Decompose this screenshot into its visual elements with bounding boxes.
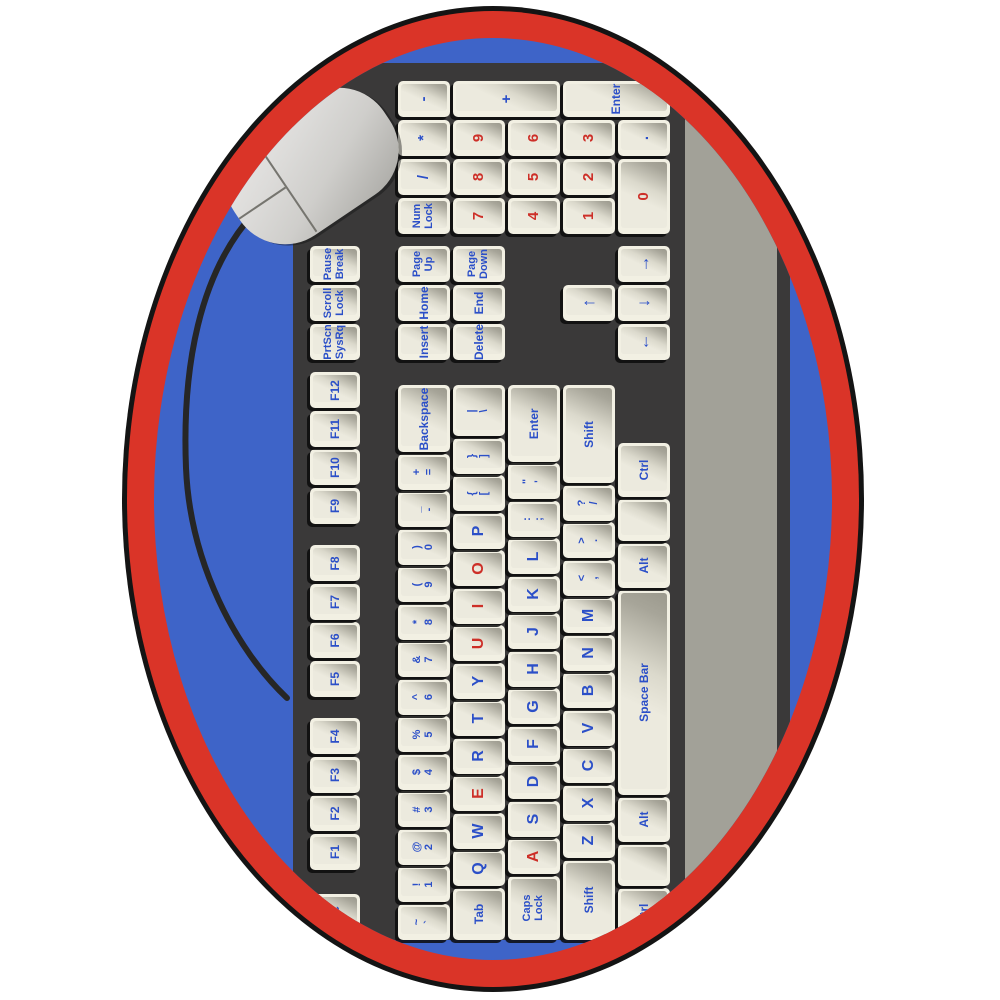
keycap-legend: L bbox=[508, 539, 560, 575]
keycap-legend: # 3 bbox=[398, 792, 450, 828]
key-e: E bbox=[453, 776, 505, 812]
keycap-legend: Shift bbox=[563, 386, 615, 484]
key-ctrl: Ctrl bbox=[618, 443, 670, 497]
key-f9: F9 bbox=[310, 488, 360, 524]
key-d: D bbox=[508, 764, 560, 800]
keycap-legend: B bbox=[563, 673, 615, 709]
key-caps-lock: Caps Lock bbox=[508, 876, 560, 940]
key-numpad-7: 7 bbox=[453, 198, 505, 234]
key-numpad-6: 6 bbox=[508, 120, 560, 156]
key-4: $ 4 bbox=[398, 754, 450, 790]
key-ctrl: Ctrl bbox=[618, 888, 670, 940]
key-k: K bbox=[508, 576, 560, 612]
key-f12: F12 bbox=[310, 373, 360, 409]
keycap-legend: Tab bbox=[453, 888, 505, 940]
keycap-legend: ) 0 bbox=[398, 529, 450, 565]
keycap-legend: P bbox=[453, 513, 505, 549]
keycap-legend: End bbox=[453, 285, 505, 321]
key-h: H bbox=[508, 651, 560, 687]
keycap-legend: S bbox=[508, 801, 560, 837]
key-z: Z bbox=[563, 823, 615, 859]
key-alt: Alt bbox=[618, 797, 670, 842]
keycap-legend: N bbox=[563, 635, 615, 671]
keycap-legend: D bbox=[508, 764, 560, 800]
keycap-legend: F bbox=[508, 726, 560, 762]
key-blank: ? / bbox=[563, 485, 615, 521]
key-blank: | \ bbox=[453, 386, 505, 437]
keycap-legend: Pause Break bbox=[310, 246, 360, 282]
key-w: W bbox=[453, 813, 505, 849]
key-3: # 3 bbox=[398, 792, 450, 828]
key-numpad-period: . bbox=[618, 120, 670, 156]
key-0: ) 0 bbox=[398, 529, 450, 565]
key-u: U bbox=[453, 626, 505, 662]
keycap-legend: > . bbox=[563, 523, 615, 559]
key-q: Q bbox=[453, 851, 505, 887]
rug-red-border: EscF1F2F3F4F5F6F7F8F9F10F11F12PrtScn Sys… bbox=[127, 11, 859, 987]
keycap-legend: % 5 bbox=[398, 717, 450, 753]
key-p: P bbox=[453, 513, 505, 549]
key-9: ( 9 bbox=[398, 567, 450, 603]
keycap-legend: F9 bbox=[310, 488, 360, 524]
key-8: * 8 bbox=[398, 604, 450, 640]
key-n: N bbox=[563, 635, 615, 671]
keycap-legend: ^ 6 bbox=[398, 679, 450, 715]
key-y: Y bbox=[453, 663, 505, 699]
keycap-legend: ( 9 bbox=[398, 567, 450, 603]
keycap-legend: Q bbox=[453, 851, 505, 887]
keycap-legend: W bbox=[453, 813, 505, 849]
keycap-legend: . bbox=[618, 120, 670, 156]
key-m: M bbox=[563, 598, 615, 634]
key-esc: Esc bbox=[310, 894, 360, 940]
keycap-legend: Scroll Lock bbox=[310, 285, 360, 321]
key-numpad-enter: Enter bbox=[563, 81, 670, 117]
key-g: G bbox=[508, 689, 560, 725]
key-page-down: Page Down bbox=[453, 246, 505, 282]
keycap-legend: F3 bbox=[310, 757, 360, 793]
key-f11: F11 bbox=[310, 411, 360, 447]
key-page-up: Page Up bbox=[398, 246, 450, 282]
key-numpad-9: 9 bbox=[453, 120, 505, 156]
key-numpad-8: 8 bbox=[453, 159, 505, 195]
rug-black-outline: EscF1F2F3F4F5F6F7F8F9F10F11F12PrtScn Sys… bbox=[122, 6, 864, 992]
keycap-legend: 3 bbox=[563, 120, 615, 156]
key-arrow-up: ↑ bbox=[563, 285, 615, 321]
keycap-legend: Delete bbox=[453, 324, 505, 360]
keycap-legend: U bbox=[453, 626, 505, 662]
keycap-legend: * bbox=[398, 120, 450, 156]
key-5: % 5 bbox=[398, 717, 450, 753]
rug-blue-field: EscF1F2F3F4F5F6F7F8F9F10F11F12PrtScn Sys… bbox=[154, 38, 832, 960]
key-home: Home bbox=[398, 285, 450, 321]
key-blank: / bbox=[398, 159, 450, 195]
keycap-legend: X bbox=[563, 785, 615, 821]
keycap-legend: Alt bbox=[618, 797, 670, 842]
key-blank bbox=[618, 499, 670, 541]
key-f2: F2 bbox=[310, 796, 360, 832]
keycap-legend: F6 bbox=[310, 623, 360, 659]
keycap-legend: " ' bbox=[508, 464, 560, 500]
key-f5: F5 bbox=[310, 661, 360, 697]
keycap-legend: ? / bbox=[563, 485, 615, 521]
keycap-legend: : ; bbox=[508, 501, 560, 537]
key-blank: _ - bbox=[398, 492, 450, 528]
key-blank: - bbox=[398, 81, 450, 117]
key-x: X bbox=[563, 785, 615, 821]
key-scroll-lock: Scroll Lock bbox=[310, 285, 360, 321]
key-f4: F4 bbox=[310, 719, 360, 755]
keycap-legend: ! 1 bbox=[398, 867, 450, 903]
keyboard-keys: EscF1F2F3F4F5F6F7F8F9F10F11F12PrtScn Sys… bbox=[310, 80, 670, 940]
key-j: J bbox=[508, 614, 560, 650]
keycap-legend: Shift bbox=[563, 860, 615, 940]
keycap-legend: 5 bbox=[508, 159, 560, 195]
keycap-legend: + bbox=[453, 81, 560, 117]
keycap-legend: M bbox=[563, 598, 615, 634]
keycap-legend: F10 bbox=[310, 450, 360, 486]
key-blank: : ; bbox=[508, 501, 560, 537]
key-arrow-left: ← bbox=[618, 324, 670, 360]
key-numpad-1: 1 bbox=[563, 198, 615, 234]
keycap-legend: F7 bbox=[310, 584, 360, 620]
keycap-legend: F11 bbox=[310, 411, 360, 447]
keycap-legend: Home bbox=[398, 285, 450, 321]
key-shift: Shift bbox=[563, 386, 615, 484]
keycap-legend: F5 bbox=[310, 661, 360, 697]
keycap-legend: A bbox=[508, 839, 560, 875]
keycap-legend: F8 bbox=[310, 546, 360, 582]
keycap-legend: H bbox=[508, 651, 560, 687]
keycap-legend: PrtScn SysRq bbox=[310, 324, 360, 360]
key-f8: F8 bbox=[310, 546, 360, 582]
key-blank: > . bbox=[563, 523, 615, 559]
key-blank: < , bbox=[563, 560, 615, 596]
key-space-bar: Space Bar bbox=[618, 590, 670, 795]
keycap-legend: _ - bbox=[398, 492, 450, 528]
keycap-legend: Z bbox=[563, 823, 615, 859]
keycap-legend: ← bbox=[618, 324, 670, 360]
key-backspace: Backspace bbox=[398, 386, 450, 453]
keycap-legend: → bbox=[618, 246, 670, 282]
key-f7: F7 bbox=[310, 584, 360, 620]
key-a: A bbox=[508, 839, 560, 875]
keycap-legend: 9 bbox=[453, 120, 505, 156]
keycap-legend: F2 bbox=[310, 796, 360, 832]
keycap-legend: T bbox=[453, 701, 505, 737]
keycap-legend: ~ ` bbox=[398, 904, 450, 940]
key-arrow-right: → bbox=[618, 246, 670, 282]
key-numpad-3: 3 bbox=[563, 120, 615, 156]
keycap-face bbox=[621, 502, 667, 535]
key-blank: { [ bbox=[453, 476, 505, 512]
key-i: I bbox=[453, 588, 505, 624]
keycap-legend: { [ bbox=[453, 476, 505, 512]
keycap-legend: Space Bar bbox=[618, 590, 670, 795]
keycap-legend: F1 bbox=[310, 834, 360, 870]
rug-photo: EscF1F2F3F4F5F6F7F8F9F10F11F12PrtScn Sys… bbox=[0, 0, 1000, 1000]
key-t: T bbox=[453, 701, 505, 737]
keycap-legend: Ctrl bbox=[618, 443, 670, 497]
keycap-legend: < , bbox=[563, 560, 615, 596]
keycap-legend: 8 bbox=[453, 159, 505, 195]
keycap-legend: 2 bbox=[563, 159, 615, 195]
key-blank: ~ ` bbox=[398, 904, 450, 940]
keycap-legend: Enter bbox=[508, 386, 560, 463]
keycap-legend: 7 bbox=[453, 198, 505, 234]
key-v: V bbox=[563, 710, 615, 746]
key-6: ^ 6 bbox=[398, 679, 450, 715]
key-numpad-4: 4 bbox=[508, 198, 560, 234]
keycap-legend: $ 4 bbox=[398, 754, 450, 790]
key-f: F bbox=[508, 726, 560, 762]
keycap-legend: Enter bbox=[563, 81, 670, 117]
key-shift: Shift bbox=[563, 860, 615, 940]
key-2: @ 2 bbox=[398, 829, 450, 865]
key-numpad-plus: + bbox=[453, 81, 560, 117]
key-delete: Delete bbox=[453, 324, 505, 360]
keycap-legend: V bbox=[563, 710, 615, 746]
key-numpad-0: 0 bbox=[618, 159, 670, 234]
key-o: O bbox=[453, 551, 505, 587]
key-enter: Enter bbox=[508, 386, 560, 463]
keycap-legend: 0 bbox=[618, 159, 670, 234]
keycap-legend: Insert bbox=[398, 324, 450, 360]
key-numpad-5: 5 bbox=[508, 159, 560, 195]
keycap-legend: Backspace bbox=[398, 386, 450, 453]
key-f3: F3 bbox=[310, 757, 360, 793]
key-1: ! 1 bbox=[398, 867, 450, 903]
key-b: B bbox=[563, 673, 615, 709]
key-7: & 7 bbox=[398, 642, 450, 678]
key-blank: * bbox=[398, 120, 450, 156]
keycap-legend: ↑ bbox=[563, 285, 615, 321]
key-c: C bbox=[563, 748, 615, 784]
key-l: L bbox=[508, 539, 560, 575]
keycap-face bbox=[621, 847, 667, 880]
keycap-legend: Page Down bbox=[453, 246, 505, 282]
key-prtscn-sysrq: PrtScn SysRq bbox=[310, 324, 360, 360]
key-blank: } ] bbox=[453, 438, 505, 474]
key-arrow-down: ↓ bbox=[618, 285, 670, 321]
keycap-legend: + = bbox=[398, 454, 450, 490]
key-s: S bbox=[508, 801, 560, 837]
keycap-legend: 6 bbox=[508, 120, 560, 156]
keycap-legend: O bbox=[453, 551, 505, 587]
keycap-legend: 4 bbox=[508, 198, 560, 234]
keycap-legend: Ctrl bbox=[618, 888, 670, 940]
keycap-legend: ↓ bbox=[618, 285, 670, 321]
key-r: R bbox=[453, 738, 505, 774]
mouse-button-divider bbox=[239, 187, 286, 220]
key-f1: F1 bbox=[310, 834, 360, 870]
key-num-lock: Num Lock bbox=[398, 198, 450, 234]
key-insert: Insert bbox=[398, 324, 450, 360]
keycap-legend: J bbox=[508, 614, 560, 650]
keycap-legend: K bbox=[508, 576, 560, 612]
keycap-legend: Caps Lock bbox=[508, 876, 560, 940]
keycap-legend: } ] bbox=[453, 438, 505, 474]
keycap-legend: Esc bbox=[310, 894, 360, 940]
key-tab: Tab bbox=[453, 888, 505, 940]
keycap-legend: 1 bbox=[563, 198, 615, 234]
keycap-legend: @ 2 bbox=[398, 829, 450, 865]
keycap-legend: I bbox=[453, 588, 505, 624]
keycap-legend: F4 bbox=[310, 719, 360, 755]
keycap-legend: Num Lock bbox=[398, 198, 450, 234]
key-numpad-2: 2 bbox=[563, 159, 615, 195]
key-f6: F6 bbox=[310, 623, 360, 659]
keycap-legend: | \ bbox=[453, 386, 505, 437]
keycap-legend: / bbox=[398, 159, 450, 195]
keycap-legend: C bbox=[563, 748, 615, 784]
key-end: End bbox=[453, 285, 505, 321]
keycap-legend: R bbox=[453, 738, 505, 774]
keycap-legend: F12 bbox=[310, 373, 360, 409]
keycap-legend: G bbox=[508, 689, 560, 725]
key-blank: + = bbox=[398, 454, 450, 490]
key-pause-break: Pause Break bbox=[310, 246, 360, 282]
mouse-button-seam bbox=[252, 137, 317, 233]
keycap-legend: Alt bbox=[618, 543, 670, 588]
key-f10: F10 bbox=[310, 450, 360, 486]
key-blank bbox=[618, 844, 670, 886]
keycap-legend: Page Up bbox=[398, 246, 450, 282]
keycap-legend: E bbox=[453, 776, 505, 812]
keycap-legend: - bbox=[398, 81, 450, 117]
keycap-legend: & 7 bbox=[398, 642, 450, 678]
keycap-legend: Y bbox=[453, 663, 505, 699]
keycap-legend: * 8 bbox=[398, 604, 450, 640]
key-blank: " ' bbox=[508, 464, 560, 500]
key-alt: Alt bbox=[618, 543, 670, 588]
